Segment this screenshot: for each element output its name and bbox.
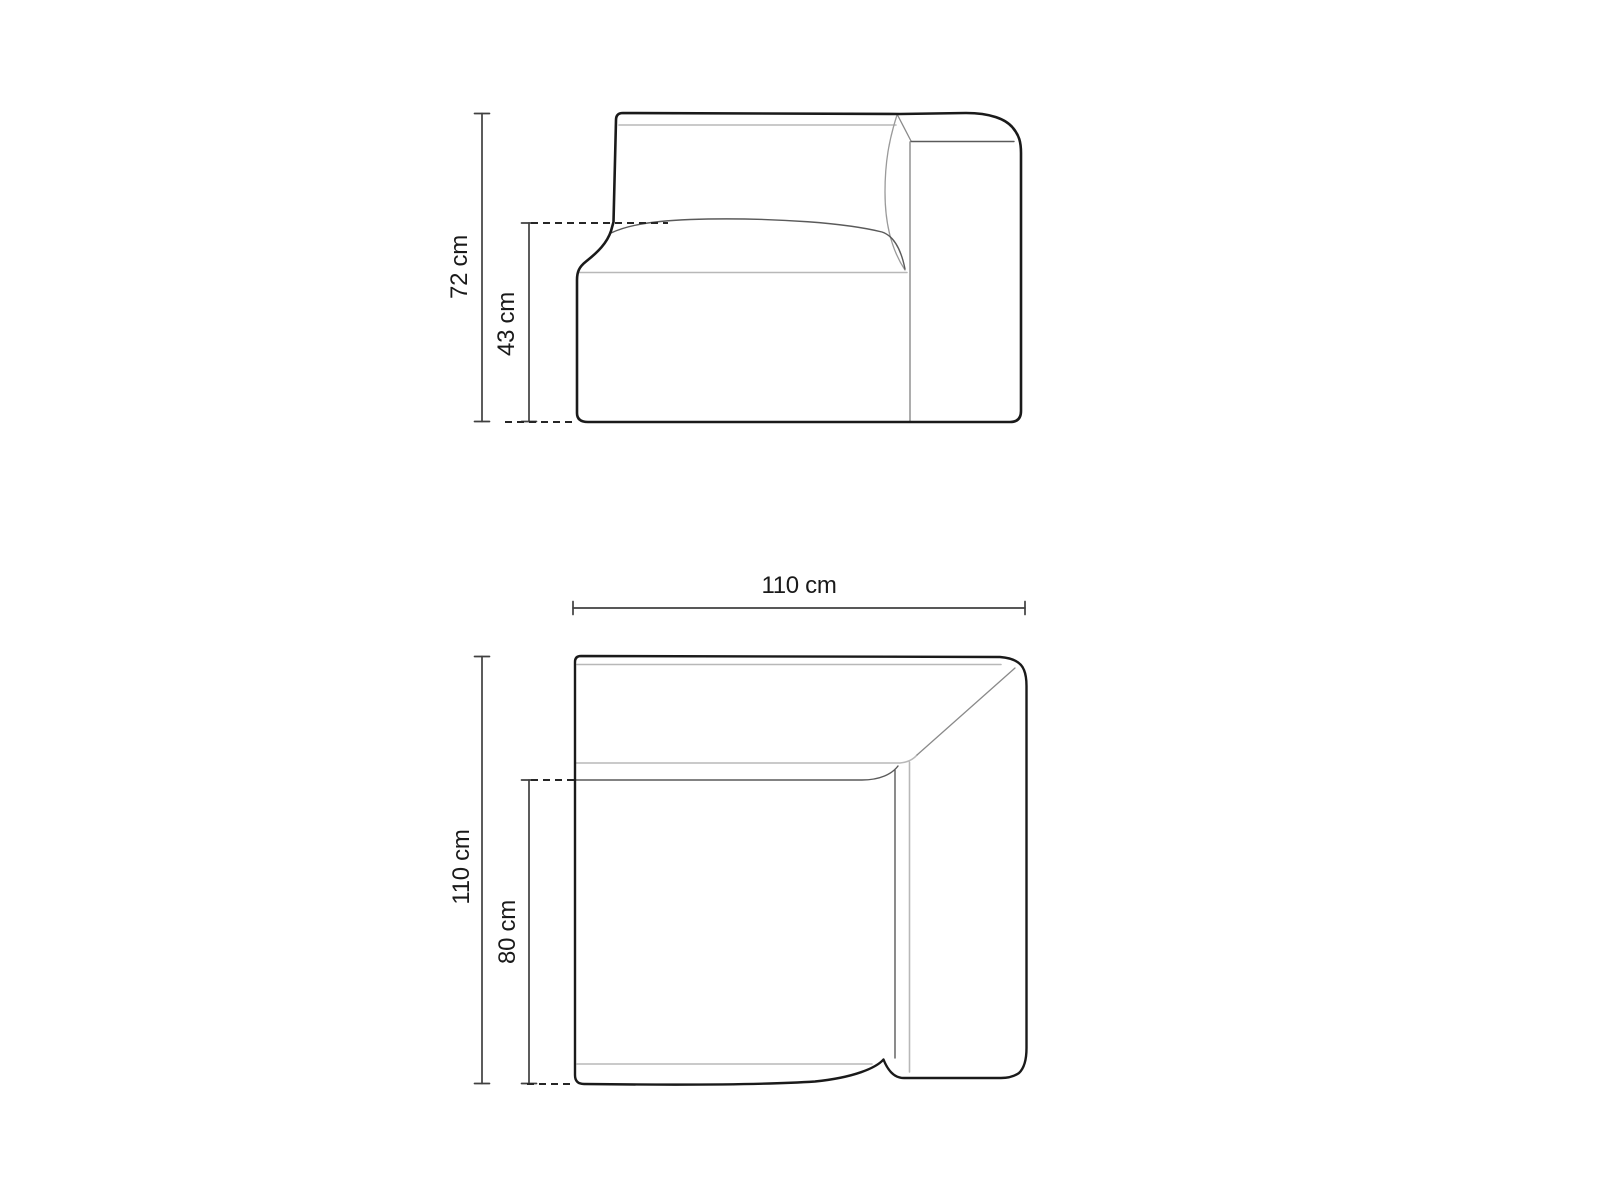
seat-cushion-top-curve (611, 219, 905, 269)
dim-seat-height-lines (522, 223, 537, 422)
plan-backrest-inner-light (576, 755, 917, 763)
dim-width-lines (573, 602, 1025, 615)
diagram-canvas: 72 cm 43 cm 110 cm 110 cm 80 cm (0, 0, 1600, 1200)
plan-corner-diagonal (917, 668, 1015, 755)
dim-total-height-lines (475, 114, 490, 422)
plan-outline (575, 656, 1027, 1085)
top-plan-view (475, 602, 1027, 1085)
dim-label-width: 110 cm (719, 571, 879, 601)
corner-block-bend-seam (897, 114, 911, 141)
dim-label-seat-depth: 80 cm (493, 862, 523, 1002)
plan-backrest-inner-dark (576, 766, 898, 780)
extension-dashed-lines-plan (527, 780, 574, 1084)
dim-label-total-height: 72 cm (445, 197, 475, 337)
dim-label-depth: 110 cm (447, 787, 477, 947)
side-view-outline (577, 113, 1021, 422)
dim-label-seat-height: 43 cm (492, 254, 522, 394)
side-elevation-view (475, 113, 1022, 422)
backrest-corner-seam-curve (885, 115, 905, 270)
dim-seat-depth-lines (522, 780, 537, 1084)
